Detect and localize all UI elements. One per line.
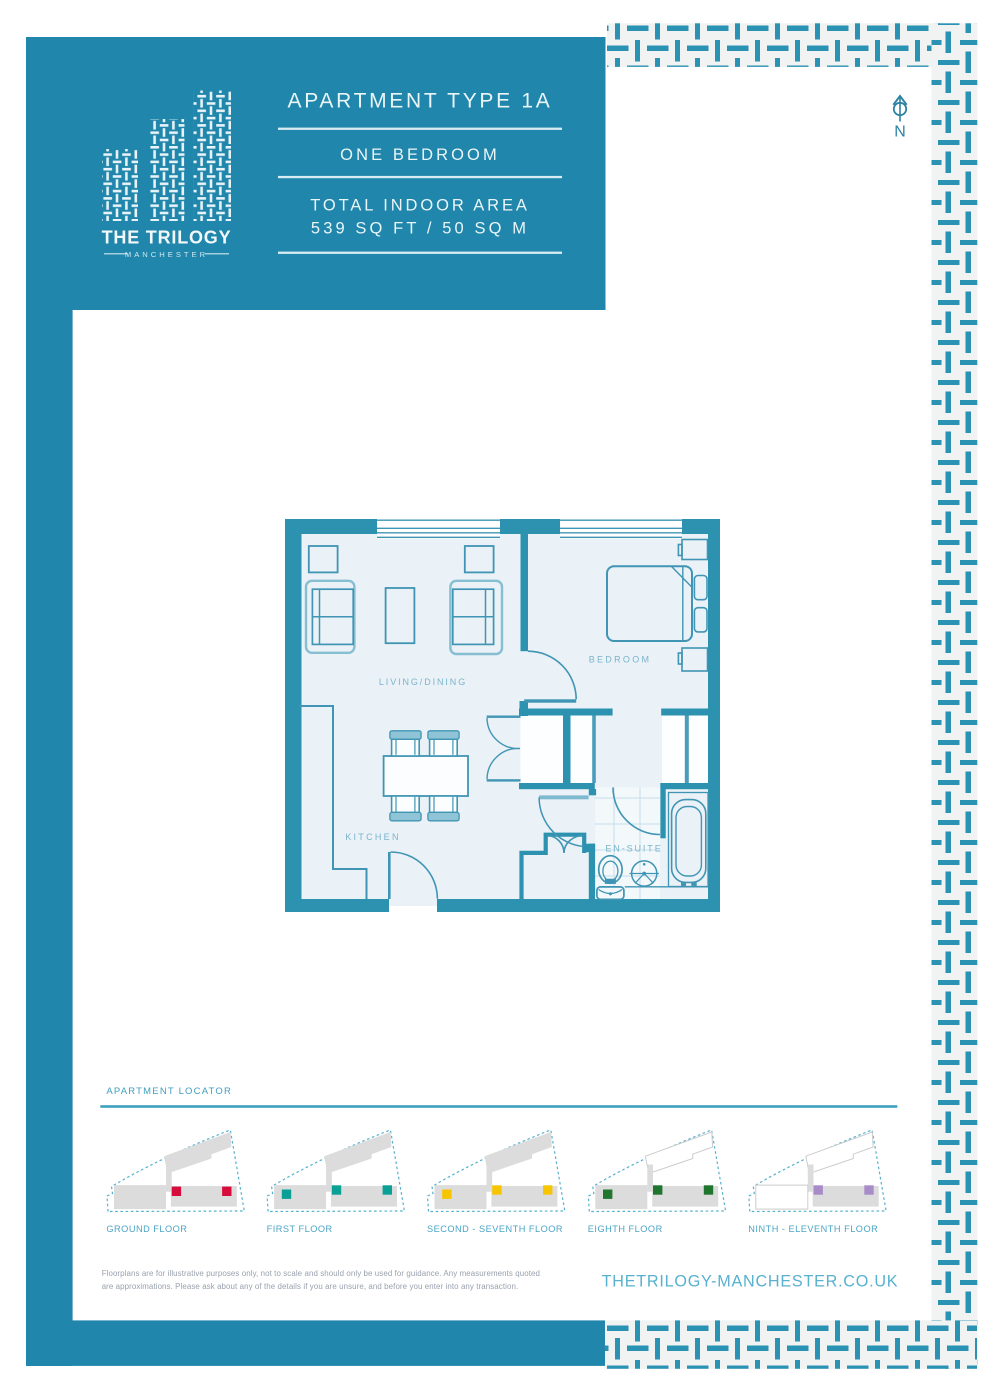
svg-text:SECOND - SEVENTH FLOOR: SECOND - SEVENTH FLOOR — [427, 1224, 563, 1234]
svg-text:EN-SUITE: EN-SUITE — [605, 844, 662, 854]
svg-text:539 SQ FT / 50 SQ M: 539 SQ FT / 50 SQ M — [311, 220, 529, 238]
svg-text:BEDROOM: BEDROOM — [589, 655, 652, 665]
svg-text:TOTAL INDOOR AREA: TOTAL INDOOR AREA — [310, 196, 530, 214]
svg-text:LIVING/DINING: LIVING/DINING — [379, 677, 467, 687]
svg-text:MANCHESTER: MANCHESTER — [125, 250, 208, 259]
svg-text:ONE BEDROOM: ONE BEDROOM — [340, 146, 500, 164]
svg-text:KITCHEN: KITCHEN — [345, 832, 401, 842]
svg-text:EIGHTH FLOOR: EIGHTH FLOOR — [588, 1224, 663, 1234]
svg-text:are approximations. Please ask: are approximations. Please ask about any… — [102, 1282, 519, 1291]
svg-text:GROUND FLOOR: GROUND FLOOR — [106, 1224, 187, 1234]
svg-text:APARTMENT TYPE 1A: APARTMENT TYPE 1A — [288, 90, 553, 113]
svg-text:NINTH - ELEVENTH FLOOR: NINTH - ELEVENTH FLOOR — [748, 1224, 878, 1234]
svg-text:APARTMENT LOCATOR: APARTMENT LOCATOR — [106, 1086, 232, 1097]
svg-text:THE TRILOGY: THE TRILOGY — [102, 228, 232, 248]
svg-text:Floorplans are for illustrativ: Floorplans are for illustrative purposes… — [102, 1269, 540, 1278]
svg-text:N: N — [894, 124, 906, 141]
svg-text:FIRST FLOOR: FIRST FLOOR — [267, 1224, 333, 1234]
svg-text:THETRILOGY-MANCHESTER.CO.UK: THETRILOGY-MANCHESTER.CO.UK — [602, 1273, 899, 1291]
